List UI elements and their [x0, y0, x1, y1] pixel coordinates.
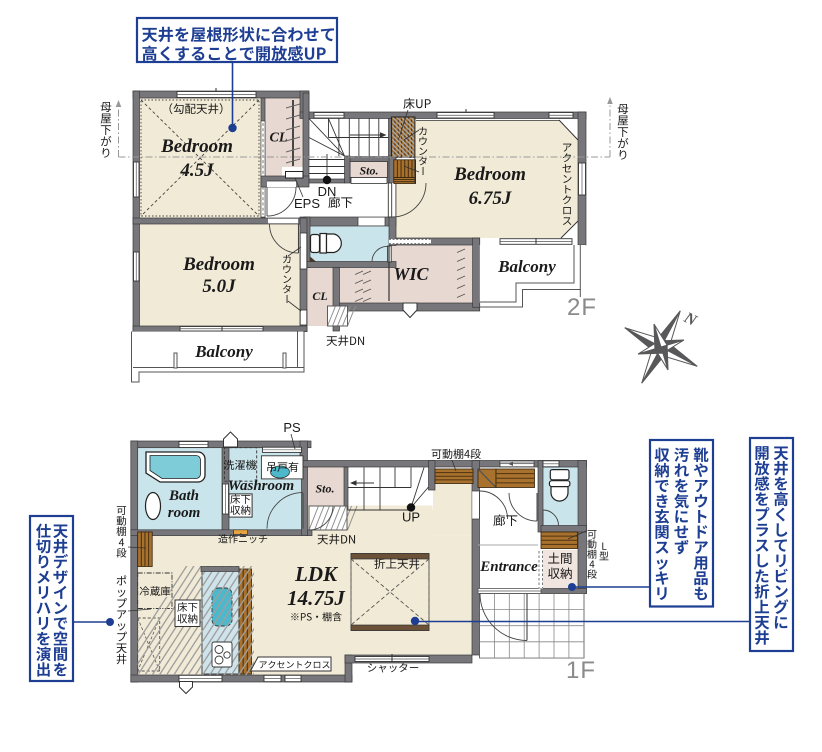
svg-text:4.5J: 4.5J	[179, 160, 214, 181]
svg-text:14.75J: 14.75J	[287, 586, 346, 610]
svg-text:DN: DN	[318, 184, 337, 199]
svg-text:CL: CL	[270, 131, 288, 146]
svg-text:CL: CL	[312, 289, 327, 303]
svg-text:6.75J: 6.75J	[469, 188, 512, 209]
svg-text:Balcony: Balcony	[194, 342, 253, 361]
svg-text:Bedroom: Bedroom	[453, 164, 526, 185]
svg-text:EPS: EPS	[294, 196, 320, 211]
svg-text:WIC: WIC	[393, 264, 429, 284]
svg-text:LDK: LDK	[294, 562, 339, 586]
svg-text:Bath: Bath	[168, 488, 199, 504]
svg-text:Balcony: Balcony	[497, 257, 556, 276]
svg-text:Entrance: Entrance	[479, 559, 538, 575]
svg-text:Washroom: Washroom	[228, 478, 294, 494]
svg-text:1F: 1F	[566, 657, 596, 684]
svg-text:Sto.: Sto.	[315, 482, 334, 496]
svg-text:Sto.: Sto.	[359, 164, 378, 178]
svg-text:UP: UP	[402, 510, 420, 525]
svg-text:Bedroom: Bedroom	[182, 254, 255, 275]
svg-text:PS: PS	[283, 420, 301, 435]
svg-text:Bedroom: Bedroom	[160, 136, 233, 157]
svg-text:2F: 2F	[567, 294, 597, 321]
svg-text:5.0J: 5.0J	[202, 276, 236, 297]
svg-text:room: room	[168, 505, 201, 521]
